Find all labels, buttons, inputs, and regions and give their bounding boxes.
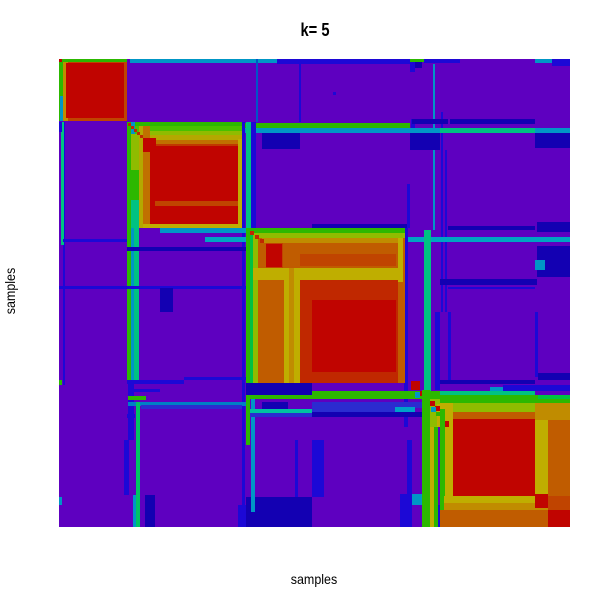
svg-text:samples: samples — [291, 571, 338, 587]
svg-text:k= 5: k= 5 — [301, 20, 330, 40]
svg-text:samples: samples — [2, 268, 18, 315]
